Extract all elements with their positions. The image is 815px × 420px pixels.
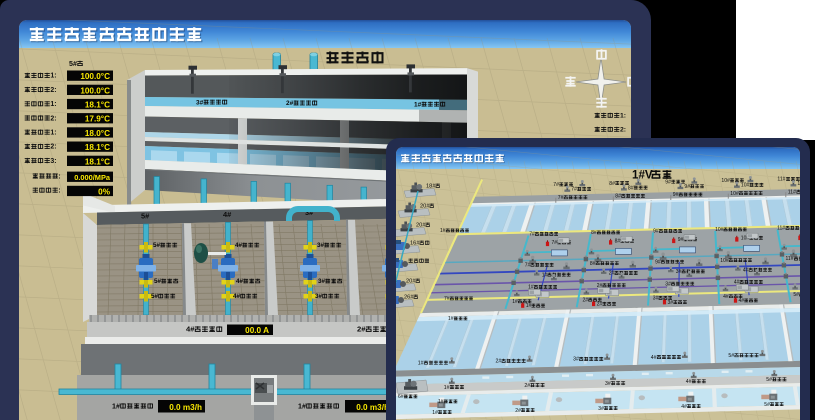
svg-text:100.0°C: 100.0°C: [80, 72, 110, 81]
svg-text:4#: 4#: [236, 278, 244, 285]
svg-text:2:: 2:: [50, 87, 56, 94]
svg-text:4#: 4#: [743, 268, 749, 274]
svg-text:4#: 4#: [723, 294, 729, 300]
svg-text:8#: 8#: [590, 261, 596, 267]
svg-text:1#: 1#: [438, 399, 444, 405]
svg-text:26#: 26#: [404, 295, 414, 301]
svg-text:2#: 2#: [609, 271, 615, 277]
svg-text:5#: 5#: [764, 402, 770, 408]
svg-text:2#: 2#: [515, 408, 521, 414]
svg-text:3#: 3#: [653, 296, 659, 302]
svg-text:1:: 1:: [50, 101, 56, 108]
svg-text:5#: 5#: [69, 60, 77, 68]
svg-text:16#: 16#: [410, 241, 420, 247]
svg-text:2:: 2:: [50, 115, 56, 122]
svg-text:1#: 1#: [432, 410, 438, 416]
svg-text:2:: 2:: [620, 127, 626, 134]
svg-text:11#: 11#: [788, 190, 796, 196]
svg-text:3#: 3#: [317, 242, 325, 249]
svg-text:1#: 1#: [444, 385, 450, 391]
svg-text:8#: 8#: [591, 230, 597, 236]
svg-text:9#: 9#: [684, 184, 690, 190]
svg-text::: :: [58, 188, 60, 195]
svg-text:1#: 1#: [418, 360, 424, 366]
svg-text:5#: 5#: [766, 377, 772, 383]
svg-text:18#: 18#: [426, 184, 436, 190]
svg-text:2#: 2#: [496, 359, 502, 365]
svg-text:8#: 8#: [615, 239, 621, 245]
svg-text:7#: 7#: [558, 195, 564, 201]
svg-text:10#: 10#: [730, 191, 739, 197]
svg-text:1#: 1#: [414, 101, 422, 108]
svg-text:7#: 7#: [571, 187, 577, 193]
svg-text:9#: 9#: [673, 192, 679, 198]
svg-text:3#: 3#: [573, 357, 579, 363]
svg-text:5#: 5#: [151, 293, 159, 300]
svg-text:1#: 1#: [112, 402, 120, 410]
svg-text:3#: 3#: [605, 381, 611, 387]
svg-text:1#: 1#: [440, 228, 446, 234]
svg-text:7#: 7#: [529, 232, 535, 238]
svg-text:1#V: 1#V: [632, 169, 653, 182]
svg-text:5#: 5#: [728, 353, 734, 359]
svg-text:11#: 11#: [786, 256, 794, 262]
svg-text:100.0°C: 100.0°C: [80, 86, 110, 95]
svg-text:4#: 4#: [235, 242, 243, 249]
svg-text:2:: 2:: [50, 144, 56, 151]
svg-text:5#: 5#: [793, 292, 799, 298]
svg-text:5#: 5#: [141, 212, 149, 221]
svg-text:4#: 4#: [233, 293, 241, 300]
svg-text:11#: 11#: [777, 177, 785, 183]
svg-text:18.0°C: 18.0°C: [85, 129, 110, 138]
svg-text:2#: 2#: [597, 302, 603, 308]
svg-text:18.1°C: 18.1°C: [85, 143, 110, 152]
svg-text:1#: 1#: [526, 303, 532, 309]
svg-text:7#: 7#: [444, 296, 450, 302]
svg-text:3#: 3#: [318, 278, 326, 285]
svg-text:7#: 7#: [553, 182, 559, 188]
svg-text:9#: 9#: [665, 179, 671, 185]
svg-text:8#: 8#: [609, 181, 615, 187]
svg-text:5#: 5#: [153, 242, 161, 249]
svg-text:2#: 2#: [357, 325, 366, 334]
svg-text:8#: 8#: [615, 194, 621, 200]
svg-text:3#: 3#: [676, 269, 682, 275]
svg-text:3:: 3:: [50, 158, 56, 165]
svg-text:11#: 11#: [797, 181, 800, 187]
svg-text:2#: 2#: [524, 383, 530, 389]
svg-text:18.1°C: 18.1°C: [85, 157, 110, 166]
svg-text:8#: 8#: [628, 185, 634, 191]
svg-text:2#: 2#: [583, 297, 589, 303]
svg-text:0.000/MPa: 0.000/MPa: [74, 173, 111, 182]
svg-text:11#: 11#: [777, 226, 785, 232]
svg-text:2#: 2#: [286, 100, 294, 107]
svg-text:4#: 4#: [681, 404, 687, 410]
svg-text:10#: 10#: [741, 183, 750, 189]
svg-text:0.0 m3/h: 0.0 m3/h: [356, 403, 389, 412]
svg-text:0.0 m3/h: 0.0 m3/h: [169, 403, 202, 412]
svg-text:6#: 6#: [398, 394, 404, 400]
svg-text:3#: 3#: [315, 293, 323, 300]
svg-text:3#: 3#: [196, 99, 204, 106]
svg-text:1#: 1#: [512, 299, 518, 305]
svg-text:4#: 4#: [186, 325, 195, 334]
svg-text:9#: 9#: [678, 237, 684, 243]
svg-text::: :: [58, 173, 60, 180]
svg-text:1#: 1#: [542, 272, 548, 278]
svg-text:1:: 1:: [50, 73, 56, 80]
svg-text:20#: 20#: [420, 204, 430, 210]
svg-text:9#: 9#: [655, 259, 661, 265]
svg-text:7#: 7#: [525, 263, 531, 269]
svg-text:1#: 1#: [448, 316, 454, 322]
svg-text:3#: 3#: [598, 406, 604, 412]
svg-text:17.9°C: 17.9°C: [85, 115, 110, 124]
svg-text:1#: 1#: [298, 402, 306, 410]
svg-text:1:: 1:: [50, 130, 56, 137]
svg-text:4#: 4#: [686, 379, 692, 385]
svg-text:10#: 10#: [720, 258, 729, 264]
svg-text:4#: 4#: [651, 355, 657, 361]
svg-text:3#: 3#: [668, 300, 674, 306]
svg-text:10#: 10#: [715, 227, 724, 233]
svg-text:0%: 0%: [98, 187, 111, 196]
svg-text:9#: 9#: [653, 229, 659, 235]
svg-text:4#: 4#: [739, 298, 745, 304]
svg-text:4#: 4#: [223, 210, 231, 219]
svg-text:20#: 20#: [406, 279, 416, 285]
svg-text:18.1°C: 18.1°C: [85, 101, 110, 110]
svg-text:7#: 7#: [552, 240, 558, 246]
svg-text:5#: 5#: [154, 278, 162, 285]
svg-text:20#: 20#: [416, 223, 426, 229]
svg-text:00.0 A: 00.0 A: [245, 326, 269, 335]
svg-text:10#: 10#: [721, 178, 730, 184]
svg-text:1:: 1:: [620, 113, 626, 120]
